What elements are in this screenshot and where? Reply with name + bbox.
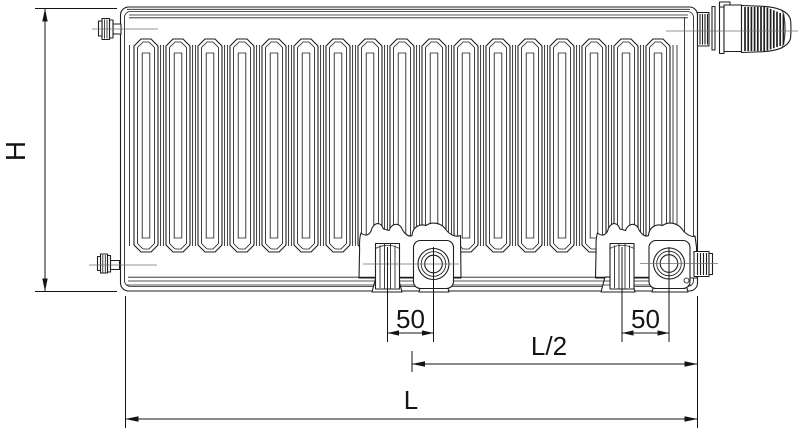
fin-inner-outline bbox=[362, 42, 379, 249]
fin-inner-outline bbox=[330, 42, 347, 249]
connector-end-plate bbox=[709, 254, 713, 275]
fin-channel bbox=[302, 53, 310, 238]
fin-inner-outline bbox=[394, 42, 411, 249]
drain-cap bbox=[98, 257, 101, 271]
valve-plate-2 bbox=[720, 3, 725, 54]
convector-fins bbox=[134, 39, 670, 252]
dimension-height: H bbox=[0, 9, 117, 292]
dim-label-height: H bbox=[0, 141, 31, 161]
fin-inner-outline bbox=[650, 42, 667, 249]
dim-label-length: L bbox=[404, 385, 418, 415]
fin-inner-outline bbox=[426, 42, 443, 249]
fin-inner-outline bbox=[266, 42, 283, 249]
valve-plate-1 bbox=[712, 7, 715, 51]
fin-channel bbox=[398, 53, 406, 238]
fin-channel bbox=[142, 53, 150, 238]
arrow-down bbox=[42, 279, 47, 292]
thermostatic-valve-head bbox=[698, 2, 791, 54]
valve-collar bbox=[724, 5, 742, 52]
arrow-left bbox=[126, 416, 139, 422]
rear-panel-lines bbox=[130, 45, 678, 246]
fin-channel bbox=[526, 53, 534, 238]
arrow-right bbox=[685, 416, 698, 422]
drawing-canvas: H 50 50 L/2 L bbox=[0, 0, 800, 433]
fin-channel bbox=[558, 53, 566, 238]
fin-inner-outline bbox=[170, 42, 187, 249]
fin-inner-outline bbox=[138, 42, 155, 249]
fin-channel bbox=[654, 53, 662, 238]
drain-hex-band bbox=[101, 254, 108, 273]
dim-label-spacing-right: 50 bbox=[631, 304, 660, 334]
fin-channel bbox=[462, 53, 470, 238]
fin-inner-outline bbox=[522, 42, 539, 249]
dim-label-half-length: L/2 bbox=[531, 331, 567, 361]
fin-inner-outline bbox=[202, 42, 219, 249]
valve-knob-ribs bbox=[745, 7, 783, 51]
drain-plug bbox=[98, 254, 120, 273]
fin-channel bbox=[494, 53, 502, 238]
fin-channel bbox=[622, 53, 630, 238]
radiator-technical-drawing: H 50 50 L/2 L bbox=[0, 0, 800, 433]
fin-inner-outline bbox=[458, 42, 475, 249]
fin-channel bbox=[430, 53, 438, 238]
fin-channel bbox=[366, 53, 374, 238]
fin-channel bbox=[334, 53, 342, 238]
fin-channel bbox=[174, 53, 182, 238]
fin-channel bbox=[206, 53, 214, 238]
arrow-left bbox=[412, 361, 425, 367]
arrow-up bbox=[42, 9, 47, 22]
dim-label-spacing-left: 50 bbox=[396, 304, 425, 334]
fin-inner-outline bbox=[554, 42, 571, 249]
fin-inner-outline bbox=[234, 42, 251, 249]
right-bottom-connector bbox=[694, 252, 713, 277]
fin-inner-outline bbox=[618, 42, 635, 249]
fin-inner-outline bbox=[490, 42, 507, 249]
fin-inner-outline bbox=[586, 42, 603, 249]
fin-channel bbox=[270, 53, 278, 238]
fin-inner-outline bbox=[298, 42, 315, 249]
fin-channel bbox=[590, 53, 598, 238]
arrow-right bbox=[685, 361, 698, 367]
vent-cap bbox=[99, 21, 103, 36]
fin-channel bbox=[238, 53, 246, 238]
